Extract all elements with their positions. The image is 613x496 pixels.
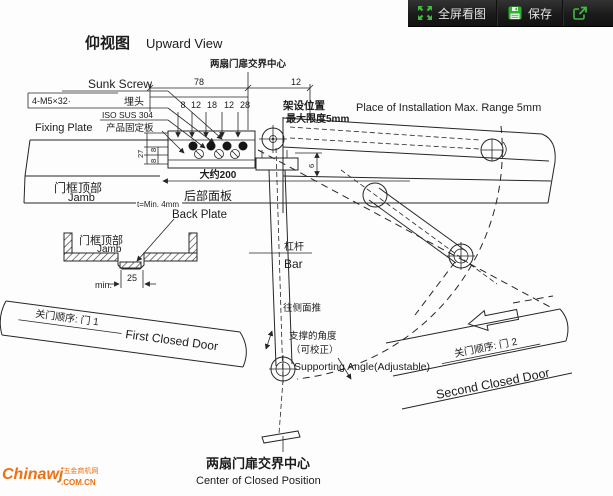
jamb-en-label: Jamb <box>68 192 95 204</box>
dim-6: 6 <box>307 164 316 168</box>
install-zh-label: 架设位置 <box>282 99 325 112</box>
dim-row-8: 8 <box>180 100 185 110</box>
bar-en-label: Bar <box>284 257 303 271</box>
support-angle-en-label: Supporting Angle(Adjustable) <box>294 361 430 373</box>
share-icon <box>572 6 588 21</box>
back-plate-zh-label: 后部面板 <box>184 188 232 203</box>
push-side-label: 往侧面推 <box>283 302 322 314</box>
fullscreen-label: 全屏看图 <box>438 5 486 22</box>
door2-zh-label: 关门顺序: 门 2 <box>453 335 519 360</box>
sunk-screw-label: Sunk Screw <box>88 77 152 91</box>
screw-spec-label: 4-M5×32· <box>32 96 71 106</box>
section-min-label: min. <box>95 280 112 290</box>
save-button[interactable]: 保存 <box>498 0 562 26</box>
image-viewer-toolbar: 全屏看图 保存 <box>408 0 613 27</box>
fixing-plate-en-label: Fixing Plate <box>35 122 92 134</box>
door1-zh-label: 关门顺序: 门 1 <box>35 307 100 328</box>
install-limit-label: 最大限度5mm <box>286 112 349 125</box>
dim-8a: 8 <box>149 148 158 152</box>
section-jamb-en-label: Jamb <box>97 244 122 255</box>
fullscreen-button[interactable]: 全屏看图 <box>408 0 496 26</box>
bar-zh-label: 杠杆 <box>284 240 304 253</box>
sunk-screw-zh-label: 埋头 <box>124 96 144 108</box>
material-label: ISO SUS 304 <box>102 110 153 120</box>
share-button[interactable] <box>564 0 596 26</box>
fixing-plate-zh-label: 产品固定板 <box>106 122 154 134</box>
door1-label-group: 关门顺序: 门 1 First Closed Door <box>17 305 220 353</box>
dim-8b: 8 <box>149 159 158 163</box>
thickness-label: t=Min. 4mm <box>137 200 179 209</box>
dim-row-12b: 12 <box>224 100 234 110</box>
floppy-icon <box>508 6 522 20</box>
support-angle-zh2-label: （可校正） <box>291 344 339 356</box>
technical-drawing: 仰视图 Upward View 两扇门扉交界中心 Sunk Screw 4-M5… <box>0 0 613 496</box>
page-title-en: Upward View <box>146 36 223 51</box>
watermark-domain: .COM.CN <box>61 477 98 488</box>
door2-en-group: Second Closed Door <box>435 366 551 402</box>
support-angle-zh1-label: 支撑的角度 <box>289 330 337 342</box>
expand-arrows-icon <box>418 6 432 20</box>
linework-frame-and-plate <box>24 72 548 203</box>
linework-levers <box>262 148 497 443</box>
dim-row-18: 18 <box>207 100 217 110</box>
door2-zh-group: 关门顺序: 门 2 <box>439 330 540 363</box>
watermark-brand: Chinawj <box>2 466 63 483</box>
door2-en-label: Second Closed Door <box>435 366 551 402</box>
dim-27: 27 <box>136 150 145 158</box>
save-label: 保存 <box>528 5 552 22</box>
watermark-tagline: 五金商机网 <box>63 468 98 475</box>
linework-door-leaf-right <box>283 117 555 213</box>
page-title-zh: 仰视图 <box>85 34 130 52</box>
back-plate-en-label: Back Plate <box>172 209 227 221</box>
bottom-center-en-label: Center of Closed Position <box>196 475 321 487</box>
install-en-label: Place of Installation Max. Range 5mm <box>356 102 541 114</box>
dim-row-12a: 12 <box>191 100 201 110</box>
door1-en-label: First Closed Door <box>125 327 219 353</box>
dim-12-top: 12 <box>291 77 301 87</box>
approx-200-label: 大约200 <box>200 168 237 181</box>
top-center-label: 两扇门扉交界中心 <box>210 58 287 70</box>
watermark: Chinawj五金商机网 .COM.CN <box>2 466 98 488</box>
screenshot-root: 仰视图 Upward View 两扇门扉交界中心 Sunk Screw 4-M5… <box>0 0 613 496</box>
dim-78: 78 <box>194 77 204 87</box>
section-25-label: 25 <box>127 273 137 283</box>
bottom-center-zh-label: 两扇门扉交界中心 <box>206 456 310 471</box>
dim-row-28: 28 <box>240 100 250 110</box>
